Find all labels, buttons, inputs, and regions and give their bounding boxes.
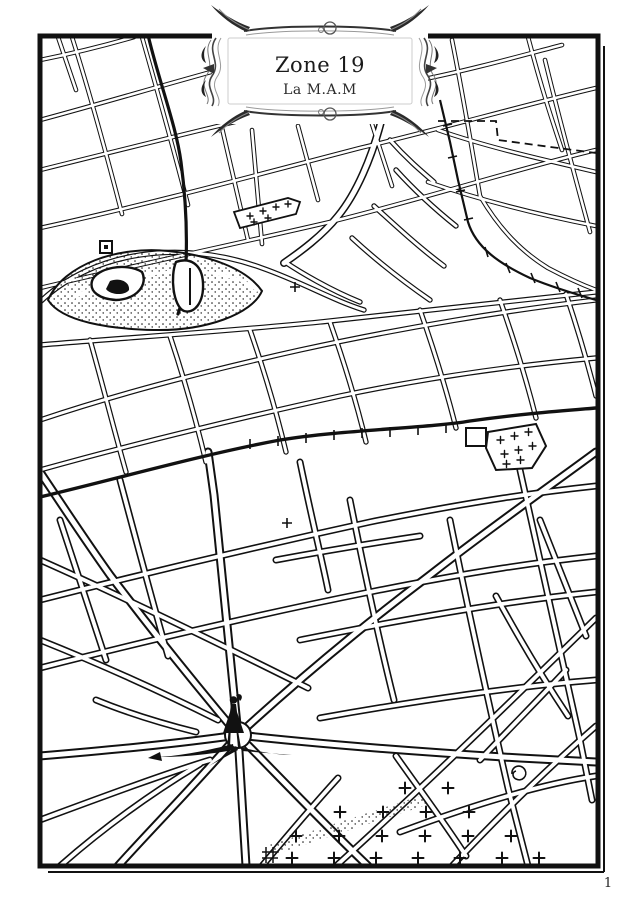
pond bbox=[173, 260, 203, 311]
cartouche: Zone 19 La M.A.M bbox=[202, 5, 439, 137]
zone-title: Zone 19 bbox=[275, 53, 365, 77]
square-marker-icon bbox=[100, 241, 112, 253]
page-number: 1 bbox=[604, 876, 612, 891]
square-block bbox=[466, 428, 486, 446]
zone-map: Zone 19 La M.A.M 1 bbox=[0, 0, 636, 900]
zone-subtitle: La M.A.M bbox=[283, 82, 357, 98]
map-page: Zone 19 La M.A.M 1 bbox=[0, 0, 636, 900]
